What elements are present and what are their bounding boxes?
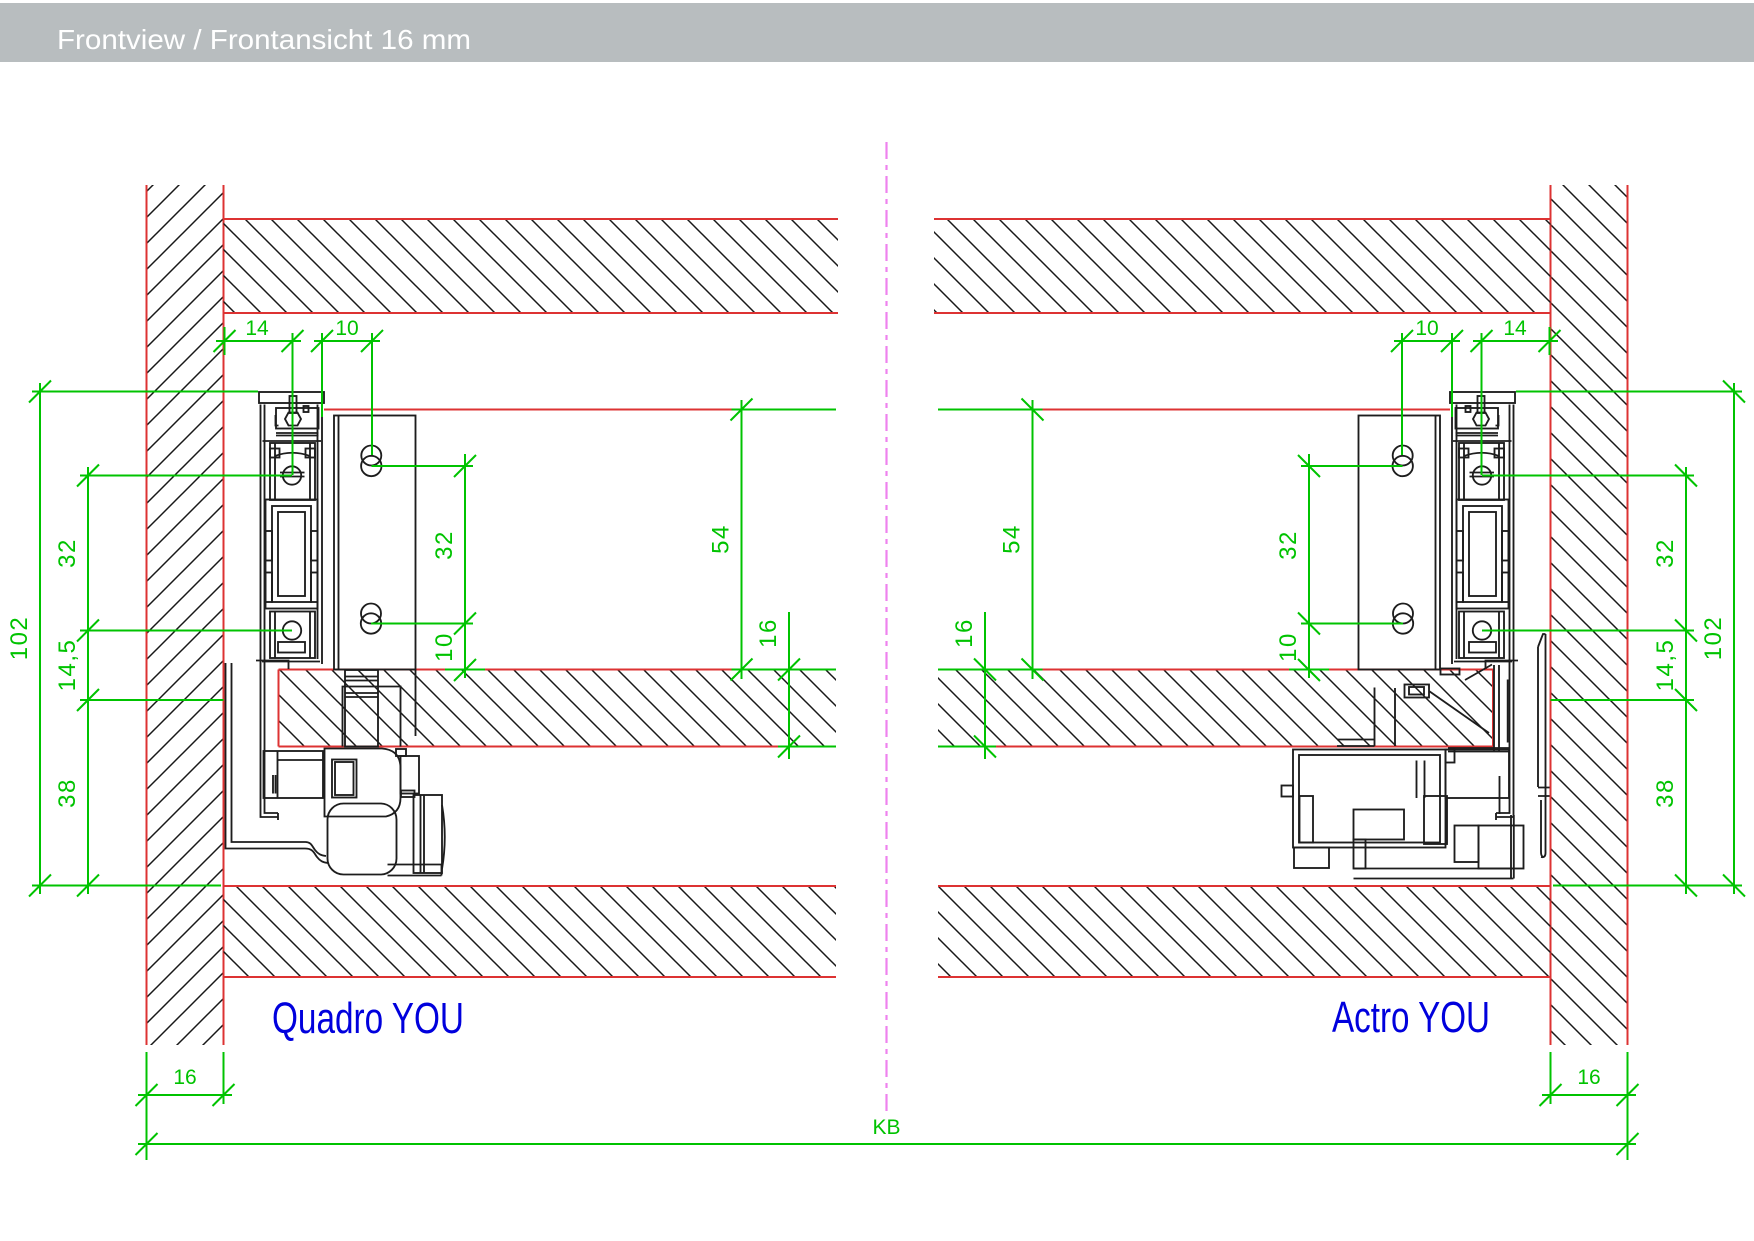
svg-text:16: 16 xyxy=(951,618,978,648)
svg-text:32: 32 xyxy=(431,530,458,560)
svg-text:102: 102 xyxy=(6,616,33,661)
svg-text:54: 54 xyxy=(708,524,735,554)
svg-text:16: 16 xyxy=(1577,1066,1600,1089)
svg-text:32: 32 xyxy=(1275,530,1302,560)
svg-text:Quadro YOU: Quadro YOU xyxy=(272,994,464,1043)
svg-text:38: 38 xyxy=(1652,778,1679,808)
svg-text:10: 10 xyxy=(431,632,458,662)
svg-text:14: 14 xyxy=(245,317,269,340)
svg-text:16: 16 xyxy=(755,618,782,648)
svg-text:Frontview / Frontansicht 16 mm: Frontview / Frontansicht 16 mm xyxy=(57,24,471,55)
svg-text:14: 14 xyxy=(1503,317,1527,340)
svg-text:16: 16 xyxy=(173,1066,196,1089)
svg-text:10: 10 xyxy=(335,317,358,340)
svg-text:10: 10 xyxy=(1415,317,1438,340)
svg-text:54: 54 xyxy=(999,524,1026,554)
svg-text:KB: KB xyxy=(872,1116,900,1139)
svg-text:38: 38 xyxy=(54,778,81,808)
svg-text:14,5: 14,5 xyxy=(1652,639,1679,692)
svg-text:32: 32 xyxy=(54,538,81,568)
svg-text:Actro YOU: Actro YOU xyxy=(1332,993,1490,1042)
svg-text:32: 32 xyxy=(1652,538,1679,568)
svg-text:14,5: 14,5 xyxy=(54,639,81,692)
svg-text:102: 102 xyxy=(1700,616,1727,661)
svg-text:10: 10 xyxy=(1275,632,1302,662)
